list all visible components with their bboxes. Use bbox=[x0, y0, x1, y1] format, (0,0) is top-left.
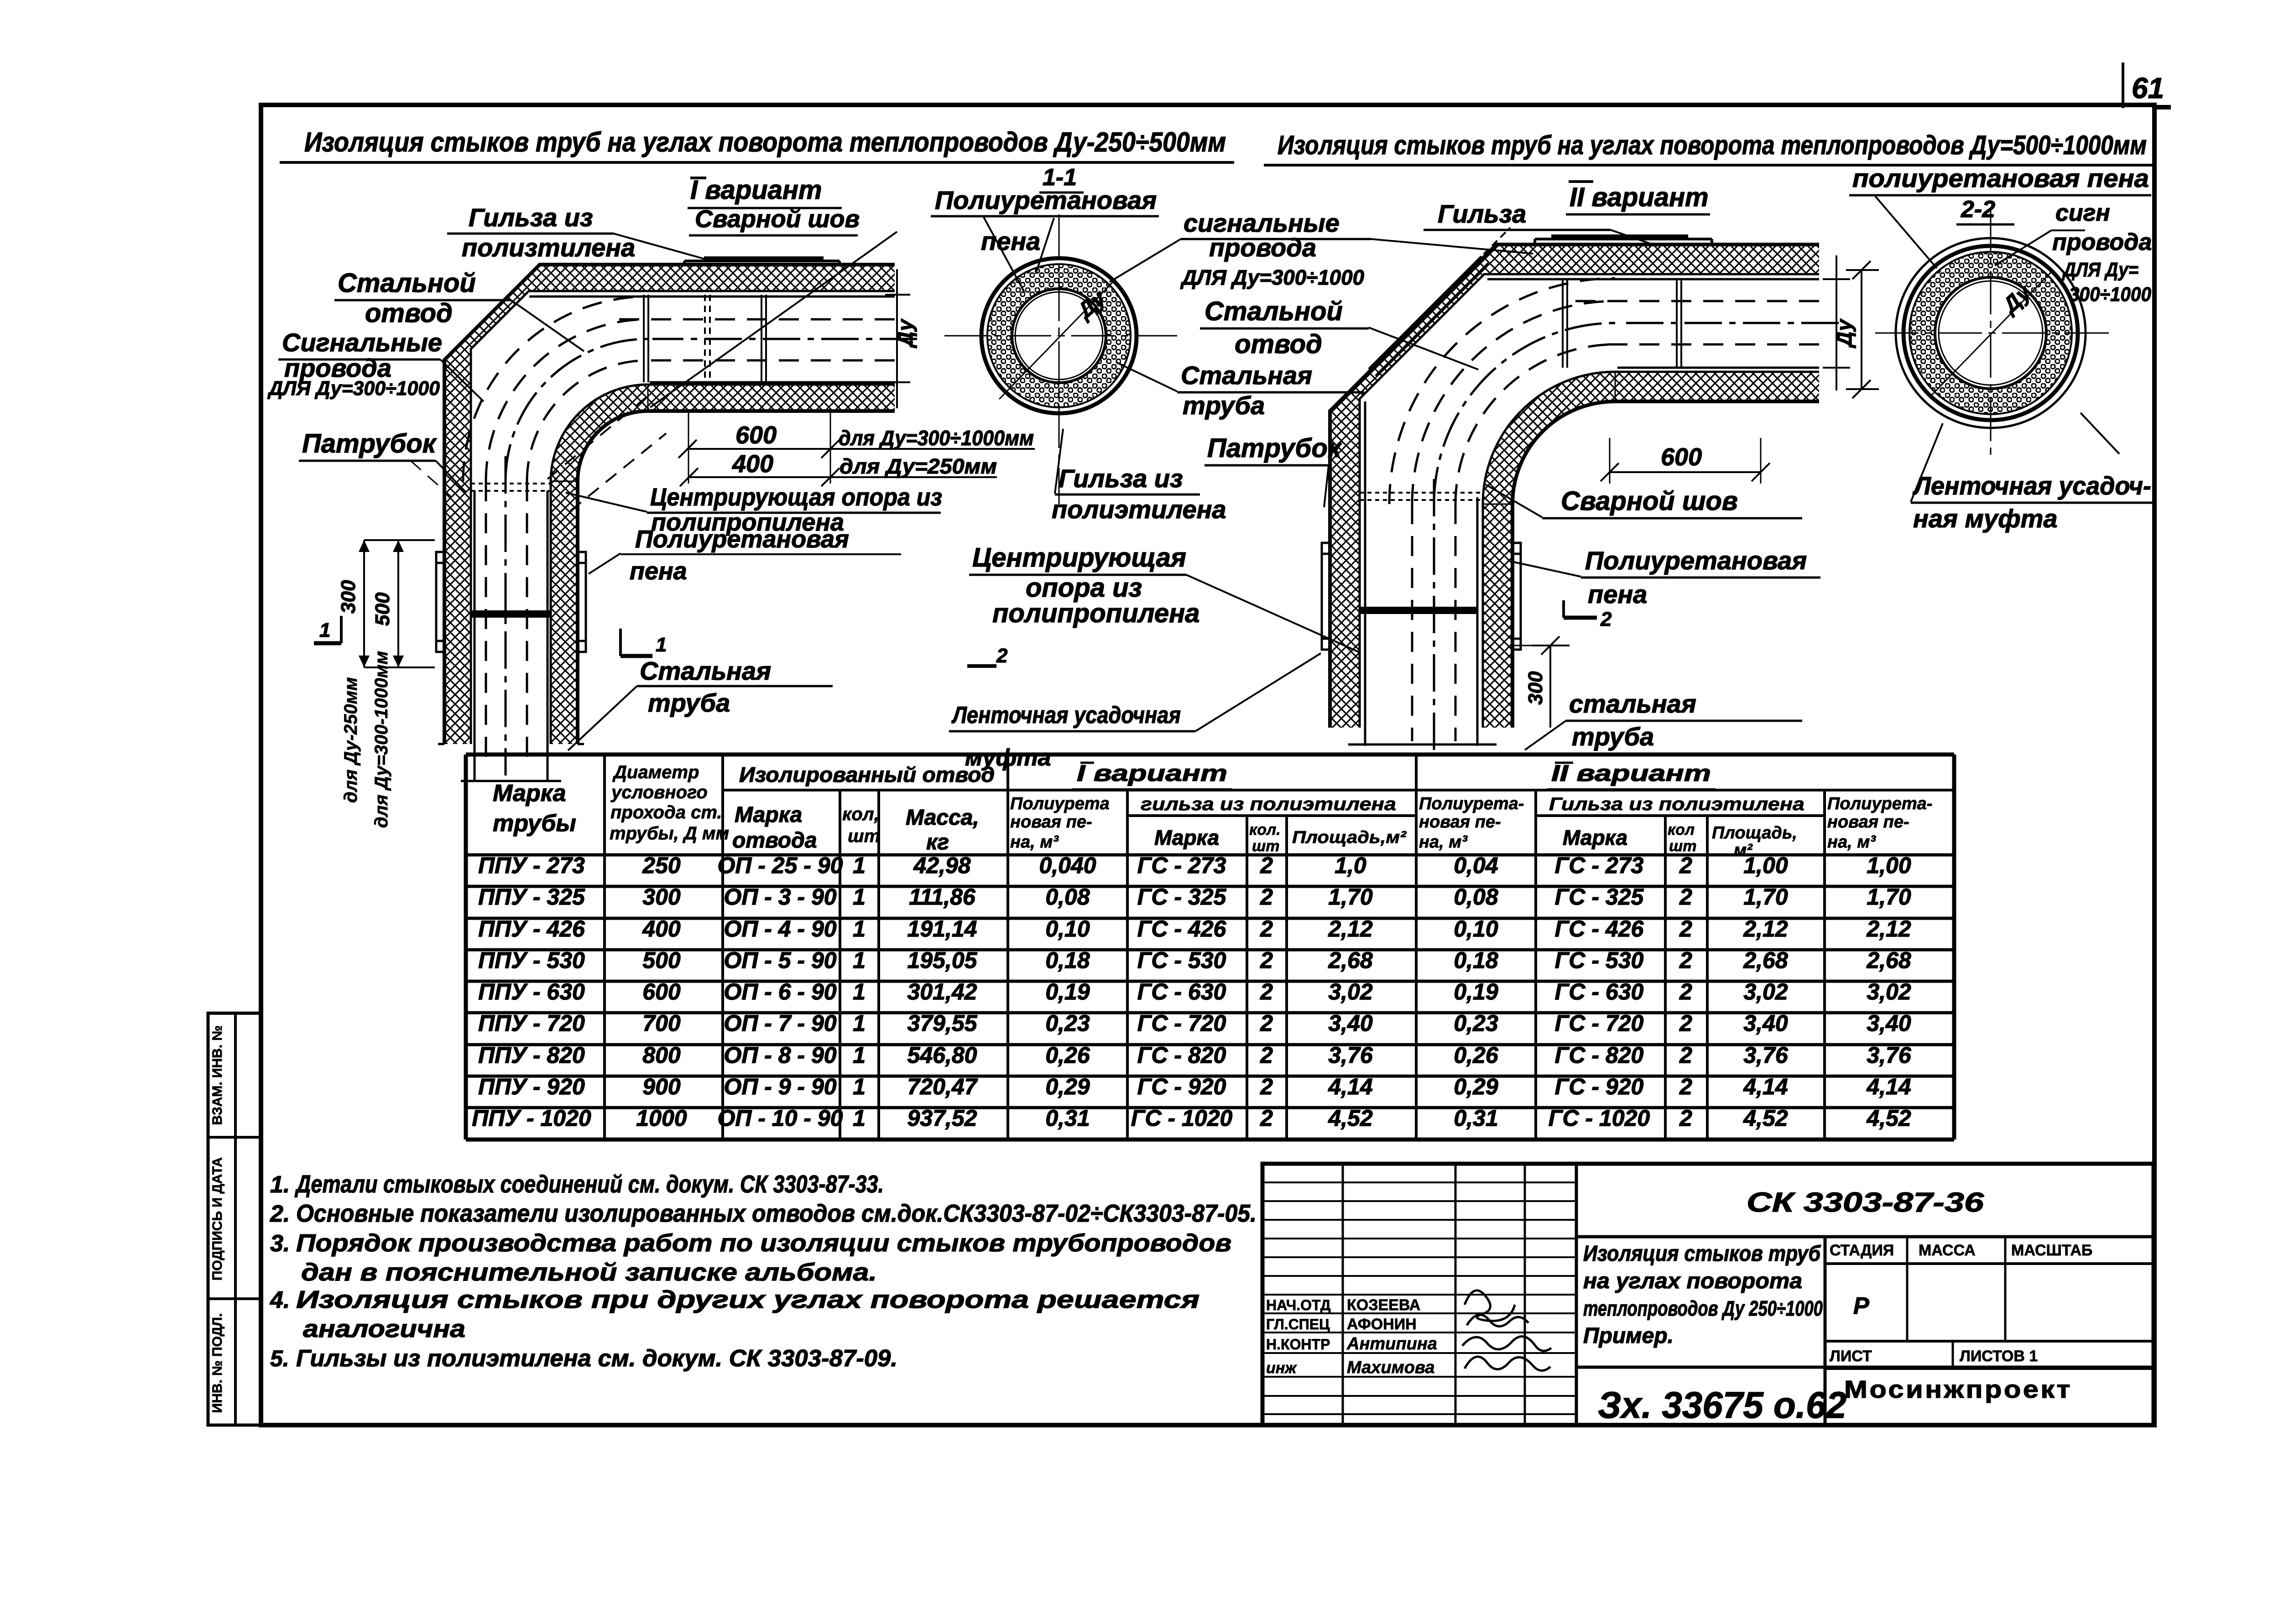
svg-text:Полиурета-: Полиурета- bbox=[1827, 794, 1932, 813]
svg-text:Полиурета: Полиурета bbox=[1010, 794, 1110, 813]
svg-text:прохода ст.: прохода ст. bbox=[610, 802, 722, 822]
svg-text:4,52: 4,52 bbox=[1866, 1105, 1911, 1131]
svg-text:0,31: 0,31 bbox=[1454, 1105, 1498, 1131]
svg-text:3,02: 3,02 bbox=[1328, 979, 1373, 1005]
svg-text:1,00: 1,00 bbox=[1743, 853, 1788, 878]
svg-text:2,68: 2,68 bbox=[1866, 947, 1911, 973]
svg-text:1,00: 1,00 bbox=[1867, 853, 1911, 878]
svg-text:ОП - 3 - 90: ОП - 3 - 90 bbox=[724, 884, 836, 910]
svg-text:500: 500 bbox=[642, 947, 681, 973]
svg-text:инж: инж bbox=[1266, 1359, 1297, 1377]
svg-text:ППУ - 426: ППУ - 426 bbox=[478, 916, 585, 942]
svg-text:300÷1000: 300÷1000 bbox=[2069, 283, 2151, 306]
svg-text:ГС - 273: ГС - 273 bbox=[1137, 853, 1226, 878]
svg-text:гильза из полиэтилена: гильза из полиэтилена bbox=[1141, 794, 1396, 814]
svg-text:ГС - 820: ГС - 820 bbox=[1555, 1042, 1644, 1068]
svg-text:Пример.: Пример. bbox=[1583, 1324, 1674, 1348]
svg-text:Зх. 33675 о.62: Зх. 33675 о.62 bbox=[1598, 1385, 1846, 1426]
svg-text:ДЛЯ Ду=: ДЛЯ Ду= bbox=[2062, 259, 2138, 281]
svg-text:Гильза из полиэтилена: Гильза из полиэтилена bbox=[1549, 794, 1804, 814]
svg-text:4,14: 4,14 bbox=[1328, 1074, 1372, 1099]
svg-text:195,05: 195,05 bbox=[907, 947, 978, 973]
svg-text:теплопроводов Ду 250÷1000: теплопроводов Ду 250÷1000 bbox=[1583, 1296, 1823, 1320]
svg-text:Ду: Ду bbox=[893, 318, 917, 349]
svg-text:600: 600 bbox=[1661, 443, 1702, 471]
svg-text:250: 250 bbox=[642, 853, 681, 878]
svg-text:900: 900 bbox=[642, 1074, 681, 1099]
svg-text:300: 300 bbox=[337, 580, 360, 614]
svg-text:Марка: Марка bbox=[735, 803, 802, 827]
svg-text:42,98: 42,98 bbox=[913, 853, 970, 878]
svg-text:полиэтилена: полиэтилена bbox=[1052, 495, 1226, 524]
svg-text:новая пе-: новая пе- bbox=[1010, 812, 1092, 832]
svg-text:500: 500 bbox=[371, 592, 394, 626]
svg-text:400: 400 bbox=[642, 916, 681, 942]
svg-text:4.: 4. bbox=[270, 1287, 290, 1313]
svg-text:3,76: 3,76 bbox=[1743, 1042, 1789, 1068]
svg-text:Марка: Марка bbox=[1154, 826, 1219, 849]
svg-text:ОП - 7 - 90: ОП - 7 - 90 bbox=[724, 1010, 836, 1036]
svg-text:на, м³: на, м³ bbox=[1010, 833, 1059, 852]
svg-text:ППУ - 820: ППУ - 820 bbox=[478, 1042, 585, 1068]
svg-text:0,040: 0,040 bbox=[1039, 853, 1096, 878]
svg-text:ОП - 9 - 90: ОП - 9 - 90 bbox=[724, 1074, 836, 1099]
svg-text:Полиуретановая: Полиуретановая bbox=[1585, 546, 1807, 575]
svg-text:3,40: 3,40 bbox=[1328, 1010, 1373, 1036]
svg-text:1,0: 1,0 bbox=[1335, 853, 1366, 878]
svg-text:Центрирующая опора из: Центрирующая опора из bbox=[650, 484, 942, 511]
svg-text:1000: 1000 bbox=[636, 1105, 687, 1131]
svg-text:1: 1 bbox=[319, 619, 330, 641]
svg-text:2,68: 2,68 bbox=[1328, 947, 1373, 973]
svg-text:ДЛЯ Ду=300÷1000: ДЛЯ Ду=300÷1000 bbox=[267, 377, 440, 400]
svg-text:1,70: 1,70 bbox=[1867, 884, 1911, 910]
svg-text:I вариант: I вариант bbox=[1077, 760, 1227, 786]
svg-text:0,19: 0,19 bbox=[1454, 979, 1498, 1005]
svg-text:ГС - 426: ГС - 426 bbox=[1137, 916, 1227, 942]
svg-text:Махимова: Махимова bbox=[1347, 1358, 1435, 1377]
svg-text:кг: кг bbox=[926, 830, 949, 854]
svg-text:Патрубок: Патрубок bbox=[302, 429, 437, 458]
svg-text:ГС - 426: ГС - 426 bbox=[1555, 916, 1644, 942]
svg-text:4,14: 4,14 bbox=[1743, 1074, 1788, 1099]
svg-text:0,18: 0,18 bbox=[1454, 947, 1498, 973]
svg-text:труба: труба bbox=[1183, 391, 1265, 420]
svg-text:379,55: 379,55 bbox=[907, 1010, 978, 1036]
svg-text:2.: 2. bbox=[270, 1201, 290, 1227]
svg-text:2: 2 bbox=[1260, 979, 1273, 1005]
svg-text:пена: пена bbox=[1588, 580, 1647, 609]
svg-text:2: 2 bbox=[1600, 608, 1612, 630]
svg-text:для Ду=300÷1000мм: для Ду=300÷1000мм bbox=[839, 426, 1034, 450]
svg-text:1,70: 1,70 bbox=[1743, 884, 1788, 910]
svg-text:трубы, Д мм: трубы, Д мм bbox=[610, 823, 729, 843]
svg-text:ППУ - 920: ППУ - 920 bbox=[478, 1074, 585, 1099]
svg-text:1: 1 bbox=[853, 947, 866, 973]
svg-text:ГС - 530: ГС - 530 bbox=[1555, 947, 1644, 973]
svg-text:ППУ - 273: ППУ - 273 bbox=[478, 853, 585, 878]
svg-text:отвода: отвода bbox=[732, 828, 817, 853]
svg-text:Полиурета-: Полиурета- bbox=[1419, 794, 1524, 813]
svg-text:полизтилена: полизтилена bbox=[462, 233, 635, 262]
svg-text:2: 2 bbox=[1679, 853, 1692, 878]
svg-text:0,19: 0,19 bbox=[1045, 979, 1090, 1005]
svg-text:720,47: 720,47 bbox=[907, 1074, 978, 1099]
svg-text:300: 300 bbox=[1524, 671, 1547, 705]
svg-text:ЛИСТОВ 1: ЛИСТОВ 1 bbox=[1960, 1348, 2038, 1365]
svg-text:1: 1 bbox=[853, 1074, 866, 1099]
svg-text:МАСШТАБ: МАСШТАБ bbox=[2011, 1242, 2092, 1259]
svg-text:4,52: 4,52 bbox=[1743, 1105, 1788, 1131]
svg-text:0,31: 0,31 bbox=[1045, 1105, 1090, 1131]
svg-text:301,42: 301,42 bbox=[907, 979, 977, 1005]
svg-text:3.: 3. bbox=[270, 1230, 290, 1257]
svg-text:2: 2 bbox=[1679, 1042, 1692, 1068]
svg-text:2,12: 2,12 bbox=[1743, 916, 1788, 942]
svg-text:1: 1 bbox=[853, 884, 866, 910]
svg-text:Стальной: Стальной bbox=[338, 268, 476, 298]
svg-text:600: 600 bbox=[642, 979, 681, 1005]
svg-text:2: 2 bbox=[1260, 1105, 1273, 1131]
svg-text:Антипина: Антипина bbox=[1346, 1334, 1437, 1353]
svg-text:2: 2 bbox=[1260, 1074, 1273, 1099]
svg-text:ГЛ.СПЕЦ: ГЛ.СПЕЦ bbox=[1266, 1316, 1330, 1333]
svg-text:ная муфта: ная муфта bbox=[1913, 504, 2058, 533]
svg-text:Масса,: Масса, bbox=[906, 806, 979, 830]
svg-text:2: 2 bbox=[1260, 884, 1273, 910]
svg-text:191,14: 191,14 bbox=[907, 916, 977, 942]
svg-text:ГС - 720: ГС - 720 bbox=[1137, 1010, 1226, 1036]
svg-text:1,70: 1,70 bbox=[1328, 884, 1373, 910]
svg-text:4,52: 4,52 bbox=[1328, 1105, 1373, 1131]
svg-text:3,40: 3,40 bbox=[1743, 1010, 1788, 1036]
svg-text:0,29: 0,29 bbox=[1454, 1074, 1498, 1099]
svg-text:1: 1 bbox=[853, 1105, 866, 1131]
svg-text:0,29: 0,29 bbox=[1045, 1074, 1090, 1099]
svg-text:Сигнальные: Сигнальные bbox=[282, 328, 442, 357]
svg-text:0,26: 0,26 bbox=[1045, 1042, 1090, 1068]
svg-text:Площадь,: Площадь, bbox=[1712, 823, 1797, 843]
svg-text:провода: провода bbox=[1209, 233, 1316, 262]
svg-text:ГС - 920: ГС - 920 bbox=[1137, 1074, 1226, 1099]
svg-text:Гильза из: Гильза из bbox=[469, 203, 593, 232]
svg-text:ППУ - 720: ППУ - 720 bbox=[478, 1010, 585, 1036]
svg-text:Стальная: Стальная bbox=[640, 656, 771, 685]
svg-text:937,52: 937,52 bbox=[907, 1105, 977, 1131]
svg-text:2: 2 bbox=[1679, 916, 1692, 942]
svg-text:Основные показатели изолирова: Основные показатели изолированных отводо… bbox=[296, 1200, 1257, 1227]
svg-text:Марка: Марка bbox=[493, 780, 566, 807]
svg-text:2: 2 bbox=[1679, 1105, 1692, 1131]
svg-text:пена: пена bbox=[630, 557, 687, 585]
svg-text:Р: Р bbox=[1853, 1293, 1869, 1319]
svg-text:1.: 1. bbox=[270, 1171, 290, 1198]
svg-text:0,08: 0,08 bbox=[1045, 884, 1090, 910]
svg-text:II вариант: II вариант bbox=[1570, 182, 1709, 212]
svg-text:2: 2 bbox=[1260, 853, 1273, 878]
svg-text:2: 2 bbox=[1260, 1042, 1273, 1068]
svg-text:2: 2 bbox=[996, 645, 1008, 667]
svg-text:2-2: 2-2 bbox=[1961, 196, 1995, 223]
svg-text:АФОНИН: АФОНИН bbox=[1347, 1316, 1417, 1333]
svg-text:Стальная: Стальная bbox=[1181, 361, 1312, 390]
svg-text:труба: труба bbox=[648, 688, 730, 717]
svg-text:1: 1 bbox=[853, 1010, 866, 1036]
svg-text:НАЧ.ОТД: НАЧ.ОТД bbox=[1266, 1297, 1331, 1313]
svg-text:Ду: Ду bbox=[1832, 318, 1856, 349]
svg-text:ГС - 630: ГС - 630 bbox=[1555, 979, 1644, 1005]
svg-text:2: 2 bbox=[1679, 884, 1692, 910]
svg-text:ОП - 6 - 90: ОП - 6 - 90 bbox=[724, 979, 836, 1005]
svg-text:ГС - 1020: ГС - 1020 bbox=[1549, 1105, 1650, 1131]
svg-text:Гильзы из полиэтилена см. доку: Гильзы из полиэтилена см. докум. СК 3303… bbox=[296, 1345, 897, 1372]
svg-text:ЛИСТ: ЛИСТ bbox=[1830, 1348, 1872, 1365]
svg-text:Стальной: Стальной bbox=[1205, 297, 1343, 326]
svg-text:ОП - 4 - 90: ОП - 4 - 90 bbox=[724, 916, 836, 942]
svg-text:1: 1 bbox=[853, 979, 866, 1005]
svg-text:3,02: 3,02 bbox=[1743, 979, 1788, 1005]
svg-text:600: 600 bbox=[735, 422, 777, 449]
svg-text:Гильза из: Гильза из bbox=[1059, 464, 1183, 493]
svg-text:ГС - 630: ГС - 630 bbox=[1137, 979, 1226, 1005]
svg-text:61: 61 bbox=[2132, 72, 2164, 104]
svg-text:2: 2 bbox=[1679, 947, 1692, 973]
svg-text:Площадь,м²: Площадь,м² bbox=[1292, 828, 1407, 847]
svg-text:Н.КОНТР: Н.КОНТР bbox=[1266, 1336, 1330, 1353]
svg-text:0,18: 0,18 bbox=[1045, 947, 1090, 973]
svg-text:546,80: 546,80 bbox=[907, 1042, 977, 1068]
svg-text:Мосинжпроект: Мосинжпроект bbox=[1844, 1376, 2072, 1403]
svg-text:новая пе-: новая пе- bbox=[1827, 812, 1909, 832]
svg-text:4,14: 4,14 bbox=[1866, 1074, 1911, 1099]
svg-text:Изоляция стыков при других угл: Изоляция стыков при других углах поворот… bbox=[296, 1286, 1199, 1313]
svg-text:кол: кол bbox=[1668, 821, 1695, 838]
svg-text:2: 2 bbox=[1260, 947, 1273, 973]
svg-text:2: 2 bbox=[1260, 1010, 1273, 1036]
svg-text:Полиуретановая: Полиуретановая bbox=[935, 186, 1157, 214]
svg-text:2: 2 bbox=[1260, 916, 1273, 942]
svg-text:800: 800 bbox=[642, 1042, 681, 1068]
svg-text:для Ду=300-1000мм: для Ду=300-1000мм bbox=[371, 651, 391, 828]
svg-text:ГС - 325: ГС - 325 bbox=[1555, 884, 1644, 910]
svg-text:3,76: 3,76 bbox=[1328, 1042, 1373, 1068]
svg-text:2,12: 2,12 bbox=[1328, 916, 1373, 942]
svg-text:3,40: 3,40 bbox=[1867, 1010, 1911, 1036]
svg-text:Патрубок: Патрубок bbox=[1207, 433, 1342, 463]
svg-text:ГС - 273: ГС - 273 bbox=[1555, 853, 1644, 878]
svg-text:700: 700 bbox=[642, 1010, 681, 1036]
svg-text:0,04: 0,04 bbox=[1454, 853, 1498, 878]
svg-text:1: 1 bbox=[853, 1042, 866, 1068]
svg-text:0,26: 0,26 bbox=[1454, 1042, 1499, 1068]
svg-text:Детали стыковых соединений см: Детали стыковых соединений см. докум. СК… bbox=[295, 1171, 884, 1198]
svg-text:ОП - 10 - 90: ОП - 10 - 90 bbox=[718, 1105, 843, 1131]
svg-text:Ленточная усадочная: Ленточная усадочная bbox=[951, 702, 1181, 729]
svg-text:Ленточная усадоч-: Ленточная усадоч- bbox=[1912, 471, 2151, 500]
svg-text:на углах поворота: на углах поворота bbox=[1583, 1269, 1802, 1293]
svg-text:2,12: 2,12 bbox=[1866, 916, 1911, 942]
svg-text:Диаметр: Диаметр bbox=[612, 762, 699, 782]
svg-text:3,76: 3,76 bbox=[1867, 1042, 1912, 1068]
svg-text:Гильза: Гильза bbox=[1438, 199, 1526, 228]
svg-text:КОЗЕЕВА: КОЗЕЕВА bbox=[1347, 1296, 1420, 1314]
svg-text:стальная: стальная bbox=[1569, 689, 1696, 718]
svg-text:МАССА: МАССА bbox=[1919, 1242, 1976, 1259]
svg-text:новая пе-: новая пе- bbox=[1419, 812, 1501, 832]
svg-text:труба: труба bbox=[1572, 722, 1654, 751]
svg-text:0,23: 0,23 bbox=[1454, 1010, 1498, 1036]
svg-text:для Ду-250мм: для Ду-250мм bbox=[341, 677, 361, 803]
svg-text:аналогична: аналогична bbox=[303, 1315, 465, 1343]
svg-text:400: 400 bbox=[732, 450, 773, 478]
svg-text:1: 1 bbox=[656, 634, 667, 656]
svg-text:300: 300 bbox=[642, 884, 681, 910]
svg-text:0,08: 0,08 bbox=[1454, 884, 1498, 910]
svg-text:полипропилена: полипропилена bbox=[992, 599, 1199, 628]
svg-text:ДЛЯ Ду=300÷1000: ДЛЯ Ду=300÷1000 bbox=[1180, 265, 1364, 289]
svg-text:ГС - 720: ГС - 720 bbox=[1555, 1010, 1644, 1036]
svg-text:сигн: сигн bbox=[2055, 200, 2110, 226]
svg-text:1: 1 bbox=[853, 853, 866, 878]
svg-text:ППУ - 630: ППУ - 630 bbox=[478, 979, 585, 1005]
svg-text:кол,: кол, bbox=[842, 804, 879, 824]
svg-text:отвод: отвод bbox=[1235, 329, 1322, 359]
svg-text:дан в пояснительной записке ал: дан в пояснительной записке альбома. bbox=[301, 1259, 877, 1286]
svg-text:2: 2 bbox=[1679, 1074, 1692, 1099]
svg-text:2: 2 bbox=[1679, 979, 1692, 1005]
svg-text:на, м³: на, м³ bbox=[1419, 833, 1468, 852]
svg-text:условного: условного bbox=[610, 782, 708, 802]
svg-text:трубы: трубы bbox=[493, 810, 576, 837]
svg-text:ОП - 8 - 90: ОП - 8 - 90 bbox=[724, 1042, 836, 1068]
svg-text:СК 3303-87-36: СК 3303-87-36 bbox=[1747, 1187, 1984, 1218]
svg-text:провода: провода bbox=[2052, 229, 2152, 255]
svg-text:1: 1 bbox=[853, 916, 866, 942]
svg-text:0,10: 0,10 bbox=[1454, 916, 1498, 942]
svg-text:полиуретановая пена: полиуретановая пена bbox=[1852, 164, 2149, 193]
svg-text:ПОДПИСЬ И ДАТА: ПОДПИСЬ И ДАТА bbox=[210, 1157, 225, 1280]
svg-text:0,23: 0,23 bbox=[1045, 1010, 1090, 1036]
svg-text:5.: 5. bbox=[270, 1346, 289, 1371]
svg-text:Сварной шов: Сварной шов bbox=[1561, 486, 1738, 516]
svg-text:ВЗАМ. ИНВ. №: ВЗАМ. ИНВ. № bbox=[210, 1025, 225, 1125]
svg-text:II вариант: II вариант bbox=[1551, 760, 1711, 786]
svg-text:Полиуретановая: Полиуретановая bbox=[635, 526, 849, 553]
svg-text:ИНВ. № ПОДЛ.: ИНВ. № ПОДЛ. bbox=[210, 1313, 225, 1413]
svg-text:пена: пена bbox=[981, 227, 1040, 255]
svg-text:Изоляция стыков труб на углах: Изоляция стыков труб на углах поворота т… bbox=[304, 127, 1226, 157]
svg-text:3,02: 3,02 bbox=[1867, 979, 1911, 1005]
svg-text:2,68: 2,68 bbox=[1743, 947, 1788, 973]
svg-text:111,86: 111,86 bbox=[909, 884, 976, 910]
svg-text:ГС - 920: ГС - 920 bbox=[1555, 1074, 1644, 1099]
svg-text:Марка: Марка bbox=[1563, 826, 1627, 849]
svg-text:Изоляция стыков труб на углах: Изоляция стыков труб на углах поворота т… bbox=[1278, 130, 2147, 160]
svg-text:ГС - 325: ГС - 325 bbox=[1137, 884, 1227, 910]
svg-text:ППУ - 325: ППУ - 325 bbox=[478, 884, 585, 910]
svg-text:СТАДИЯ: СТАДИЯ bbox=[1830, 1242, 1894, 1259]
svg-text:для Ду=250мм: для Ду=250мм bbox=[840, 454, 997, 478]
svg-text:ОП - 25 - 90: ОП - 25 - 90 bbox=[718, 853, 843, 878]
svg-text:ППУ - 530: ППУ - 530 bbox=[478, 947, 585, 973]
svg-text:ГС - 530: ГС - 530 bbox=[1137, 947, 1226, 973]
svg-text:Изоляция стыков труб: Изоляция стыков труб bbox=[1583, 1242, 1821, 1266]
svg-text:Порядок производства работ по: Порядок производства работ по изоляции с… bbox=[296, 1229, 1231, 1257]
svg-text:на, м³: на, м³ bbox=[1827, 833, 1876, 852]
svg-text:0,10: 0,10 bbox=[1045, 916, 1090, 942]
svg-text:ППУ - 1020: ППУ - 1020 bbox=[472, 1105, 591, 1131]
svg-text:шт: шт bbox=[848, 826, 880, 846]
svg-text:кол.: кол. bbox=[1249, 821, 1281, 838]
svg-text:ГС - 1020: ГС - 1020 bbox=[1131, 1105, 1233, 1131]
svg-text:отвод: отвод bbox=[365, 298, 453, 328]
svg-text:Сварной шов: Сварной шов bbox=[695, 205, 860, 233]
svg-text:ОП - 5 - 90: ОП - 5 - 90 bbox=[724, 947, 836, 973]
svg-text:Центрирующая: Центрирующая bbox=[972, 543, 1186, 573]
svg-text:I вариант: I вариант bbox=[690, 175, 822, 205]
svg-text:2: 2 bbox=[1679, 1010, 1692, 1036]
svg-text:ГС - 820: ГС - 820 bbox=[1137, 1042, 1226, 1068]
svg-text:Изолированный отвод: Изолированный отвод bbox=[739, 763, 995, 786]
